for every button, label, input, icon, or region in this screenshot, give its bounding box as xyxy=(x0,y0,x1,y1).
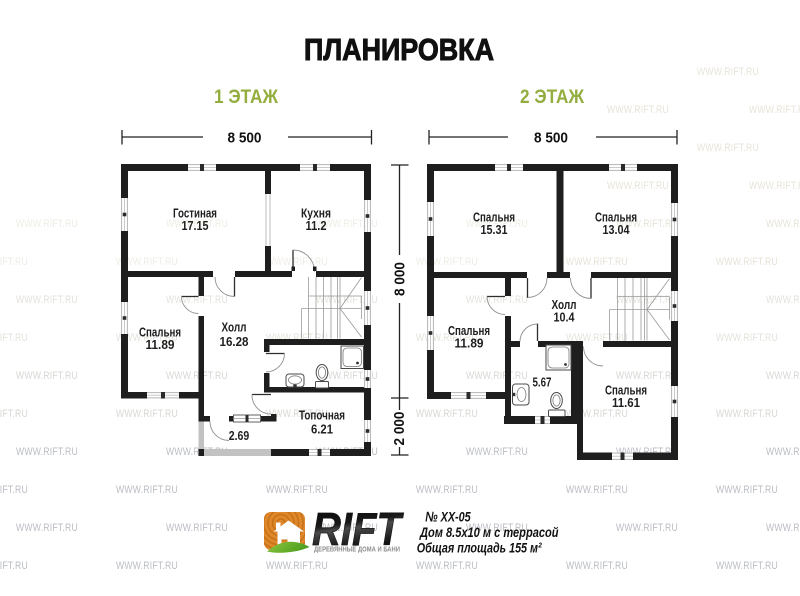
svg-text:11.61: 11.61 xyxy=(612,396,640,410)
svg-text:2 000: 2 000 xyxy=(391,412,408,446)
svg-text:WWW.RIFT.RU: WWW.RIFT.RU xyxy=(16,294,78,306)
svg-text:WWW.RIFT.RU: WWW.RIFT.RU xyxy=(716,332,778,344)
svg-text:WWW.RIFT.RU: WWW.RIFT.RU xyxy=(616,370,678,382)
svg-text:WWW.RIFT.RU: WWW.RIFT.RU xyxy=(166,370,228,382)
svg-text:WWW.RIFT.RU: WWW.RIFT.RU xyxy=(0,484,28,496)
svg-text:WWW.RIFT.RU: WWW.RIFT.RU xyxy=(766,446,800,458)
svg-text:ДЕРЕВЯННЫЕ ДОМА И БАНИ: ДЕРЕВЯННЫЕ ДОМА И БАНИ xyxy=(314,545,400,554)
svg-text:WWW.RIFT.RU: WWW.RIFT.RU xyxy=(607,180,669,192)
svg-text:№ ХХ-05: № ХХ-05 xyxy=(425,510,471,526)
svg-text:WWW.RIFT.RU: WWW.RIFT.RU xyxy=(749,180,800,192)
svg-text:WWW.RIFT.RU: WWW.RIFT.RU xyxy=(716,408,778,420)
svg-text:WWW.RIFT.RU: WWW.RIFT.RU xyxy=(266,256,328,268)
svg-text:2 ЭТАЖ: 2 ЭТАЖ xyxy=(520,87,585,108)
svg-text:WWW.RIFT.RU: WWW.RIFT.RU xyxy=(0,332,28,344)
svg-text:5.67: 5.67 xyxy=(533,376,552,390)
svg-text:Топочная: Топочная xyxy=(299,409,345,423)
svg-text:11.2: 11.2 xyxy=(306,219,327,233)
svg-text:WWW.RIFT.RU: WWW.RIFT.RU xyxy=(166,294,228,306)
svg-text:WWW.RIFT.RU: WWW.RIFT.RU xyxy=(566,560,628,572)
svg-text:8 500: 8 500 xyxy=(534,130,568,147)
svg-text:8 000: 8 000 xyxy=(391,262,408,296)
svg-text:10.4: 10.4 xyxy=(554,311,575,325)
svg-text:ПЛАНИРОВКА: ПЛАНИРОВКА xyxy=(304,33,494,67)
svg-text:WWW.RIFT.RU: WWW.RIFT.RU xyxy=(749,104,800,116)
svg-text:WWW.RIFT.RU: WWW.RIFT.RU xyxy=(566,484,628,496)
svg-text:8 500: 8 500 xyxy=(228,130,262,147)
svg-text:WWW.RIFT.RU: WWW.RIFT.RU xyxy=(716,484,778,496)
svg-text:WWW.RIFT.RU: WWW.RIFT.RU xyxy=(266,560,328,572)
svg-text:1 ЭТАЖ: 1 ЭТАЖ xyxy=(214,87,279,108)
svg-text:WWW.RIFT.RU: WWW.RIFT.RU xyxy=(416,484,478,496)
svg-text:WWW.RIFT.RU: WWW.RIFT.RU xyxy=(466,370,528,382)
svg-text:WWW.RIFT.RU: WWW.RIFT.RU xyxy=(716,560,778,572)
svg-text:13.04: 13.04 xyxy=(603,223,630,237)
svg-text:WWW.RIFT.RU: WWW.RIFT.RU xyxy=(416,256,478,268)
svg-text:2.69: 2.69 xyxy=(229,429,250,443)
svg-text:WWW.RIFT.RU: WWW.RIFT.RU xyxy=(466,446,528,458)
svg-text:Холл: Холл xyxy=(222,321,247,335)
svg-text:WWW.RIFT.RU: WWW.RIFT.RU xyxy=(716,256,778,268)
svg-text:17.15: 17.15 xyxy=(182,219,209,233)
svg-text:WWW.RIFT.RU: WWW.RIFT.RU xyxy=(466,294,528,306)
svg-text:WWW.RIFT.RU: WWW.RIFT.RU xyxy=(16,522,78,534)
svg-text:WWW.RIFT.RU: WWW.RIFT.RU xyxy=(0,256,28,268)
svg-text:WWW.RIFT.RU: WWW.RIFT.RU xyxy=(0,560,28,572)
svg-text:WWW.RIFT.RU: WWW.RIFT.RU xyxy=(16,218,78,230)
svg-text:Общая площадь 155 м²: Общая площадь 155 м² xyxy=(417,540,543,556)
svg-text:WWW.RIFT.RU: WWW.RIFT.RU xyxy=(116,408,178,420)
svg-text:WWW.RIFT.RU: WWW.RIFT.RU xyxy=(0,408,28,420)
svg-text:Дом 8.5х10 м с террасой: Дом 8.5х10 м с террасой xyxy=(419,525,559,541)
svg-text:WWW.RIFT.RU: WWW.RIFT.RU xyxy=(766,370,800,382)
svg-text:15.31: 15.31 xyxy=(481,223,508,237)
svg-text:WWW.RIFT.RU: WWW.RIFT.RU xyxy=(266,484,328,496)
svg-text:WWW.RIFT.RU: WWW.RIFT.RU xyxy=(616,522,678,534)
svg-text:WWW.RIFT.RU: WWW.RIFT.RU xyxy=(116,560,178,572)
svg-text:11.89: 11.89 xyxy=(455,337,484,351)
svg-text:WWW.RIFT.RU: WWW.RIFT.RU xyxy=(766,218,800,230)
svg-text:WWW.RIFT.RU: WWW.RIFT.RU xyxy=(416,560,478,572)
svg-text:WWW.RIFT.RU: WWW.RIFT.RU xyxy=(697,142,759,154)
svg-text:WWW.RIFT.RU: WWW.RIFT.RU xyxy=(16,370,78,382)
svg-text:WWW.RIFT.RU: WWW.RIFT.RU xyxy=(566,256,628,268)
svg-text:WWW.RIFT.RU: WWW.RIFT.RU xyxy=(116,484,178,496)
svg-text:WWW.RIFT.RU: WWW.RIFT.RU xyxy=(166,522,228,534)
svg-text:6.21: 6.21 xyxy=(311,423,333,437)
svg-text:WWW.RIFT.RU: WWW.RIFT.RU xyxy=(697,66,759,78)
svg-text:WWW.RIFT.RU: WWW.RIFT.RU xyxy=(766,522,800,534)
svg-text:WWW.RIFT.RU: WWW.RIFT.RU xyxy=(766,294,800,306)
svg-text:16.28: 16.28 xyxy=(220,335,249,349)
svg-text:WWW.RIFT.RU: WWW.RIFT.RU xyxy=(416,408,478,420)
svg-text:11.89: 11.89 xyxy=(146,338,175,352)
svg-text:WWW.RIFT.RU: WWW.RIFT.RU xyxy=(16,446,78,458)
svg-text:WWW.RIFT.RU: WWW.RIFT.RU xyxy=(607,104,669,116)
